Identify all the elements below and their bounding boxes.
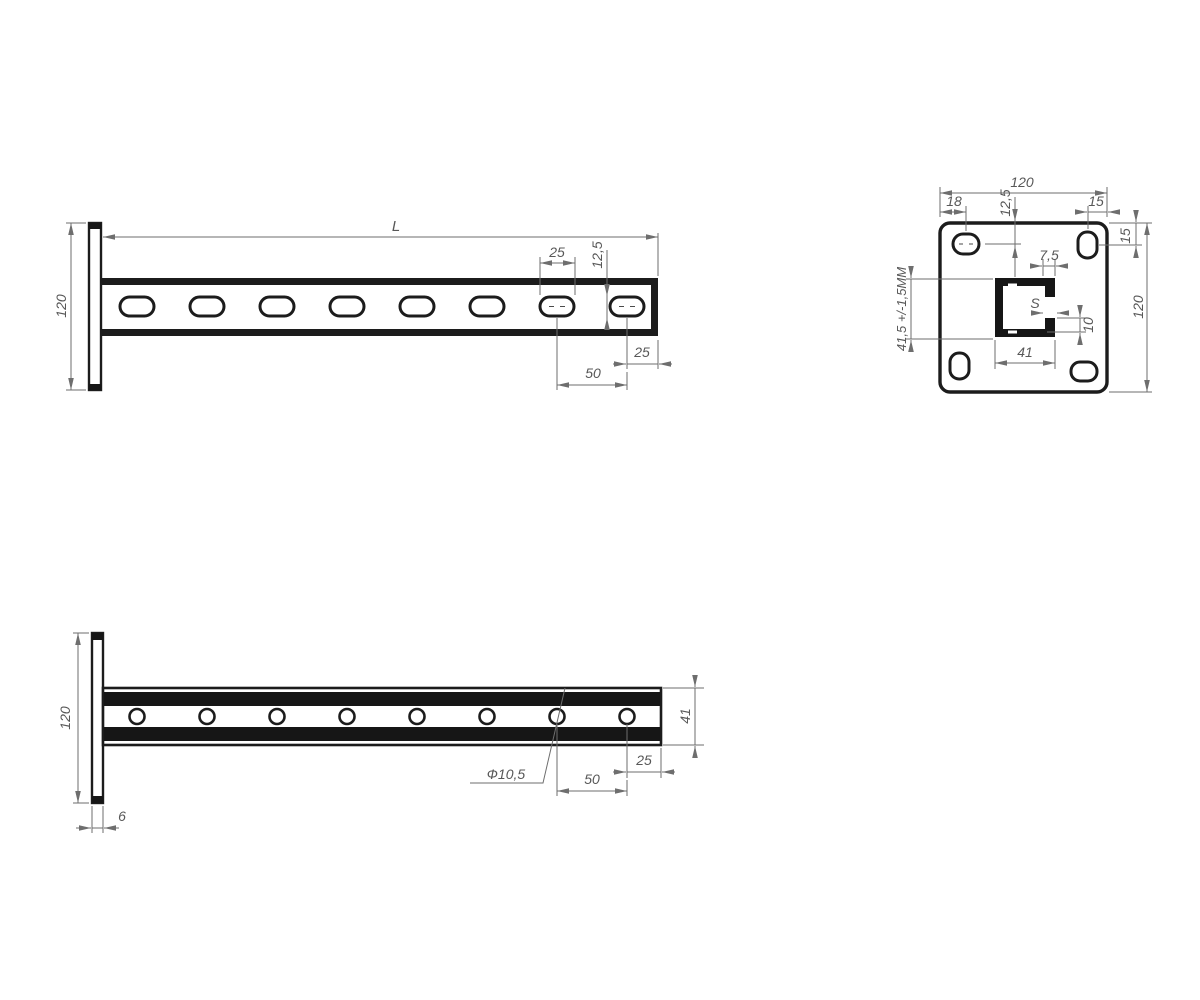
dim-lip-width: 7,5 bbox=[1039, 247, 1059, 263]
front-plate-cap-top bbox=[89, 223, 101, 229]
channel-top-wall bbox=[995, 278, 1045, 286]
dim-plate-height: 120 bbox=[1130, 295, 1146, 319]
dim-front-length: L bbox=[392, 218, 400, 235]
dim-front-pitch: 50 bbox=[585, 365, 601, 381]
top-plate-edge bbox=[92, 633, 103, 803]
back-plate-view: 120 18 12,5 15 15 bbox=[894, 174, 1152, 392]
top-plate-cap-top bbox=[92, 633, 103, 640]
dim-front-slot-length-lines bbox=[540, 257, 575, 295]
dim-top-end-offset: 25 bbox=[635, 752, 652, 768]
slot-hole bbox=[260, 297, 294, 316]
dim-front-height: 120 bbox=[53, 294, 69, 318]
dim-plate-hole-top: 12,5 bbox=[997, 189, 1013, 216]
top-channel-lip-band-2 bbox=[104, 727, 660, 741]
dim-top-channel-width: 41 bbox=[677, 708, 693, 724]
slot-hole bbox=[330, 297, 364, 316]
dim-front-slot-width: 12,5 bbox=[589, 241, 605, 268]
slot-hole bbox=[470, 297, 504, 316]
dim-top-plate-thickness: 6 bbox=[118, 808, 126, 824]
front-plate-edge bbox=[89, 223, 101, 390]
slot-hole bbox=[190, 297, 224, 316]
round-hole bbox=[620, 709, 635, 724]
corner-hole-top-right bbox=[1078, 232, 1097, 258]
dim-front-slot-length: 25 bbox=[548, 244, 565, 260]
dim-plate-hole-top-right: 15 bbox=[1117, 228, 1133, 244]
slot-hole bbox=[540, 297, 574, 316]
channel-left-wall bbox=[995, 278, 1003, 337]
slot-hole bbox=[120, 297, 154, 316]
dim-front-height-lines bbox=[66, 223, 86, 390]
round-hole bbox=[340, 709, 355, 724]
round-hole bbox=[130, 709, 145, 724]
top-plate-cap-bottom bbox=[92, 796, 103, 803]
front-plate-cap-bottom bbox=[89, 384, 101, 390]
round-hole bbox=[270, 709, 285, 724]
front-slot-holes bbox=[120, 297, 644, 316]
round-hole bbox=[410, 709, 425, 724]
slot-hole bbox=[610, 297, 644, 316]
corner-hole-bottom-right bbox=[1071, 362, 1097, 381]
channel-bottom-wall bbox=[995, 329, 1045, 337]
channel-top-notch bbox=[1008, 284, 1017, 287]
slot-hole bbox=[400, 297, 434, 316]
dim-top-pitch: 50 bbox=[584, 771, 600, 787]
dim-channel-width: 41 bbox=[1017, 344, 1033, 360]
top-channel-lip-band-1 bbox=[104, 692, 660, 706]
dim-top-plate-thickness-lines bbox=[76, 806, 119, 833]
round-hole bbox=[200, 709, 215, 724]
dim-lip-height: 10 bbox=[1080, 317, 1096, 333]
dim-top-height: 120 bbox=[57, 706, 73, 730]
dim-top-hole-dia: Ф10,5 bbox=[487, 766, 526, 782]
dim-top-height-lines bbox=[73, 633, 89, 803]
corner-hole-top-left bbox=[953, 234, 979, 254]
dim-front-end-offset: 25 bbox=[633, 344, 650, 360]
dim-plate-hole-left: 18 bbox=[946, 193, 962, 209]
dim-wall-thickness: S bbox=[1030, 295, 1040, 311]
dim-plate-width: 120 bbox=[1010, 174, 1034, 190]
round-hole bbox=[480, 709, 495, 724]
front-view: 120 L 25 12,5 25 bbox=[53, 218, 672, 390]
dim-plate-hole-right: 15 bbox=[1088, 193, 1104, 209]
drawing-canvas: 120 L 25 12,5 25 bbox=[0, 0, 1200, 1000]
dim-channel-height: 41,5 +/-1,5ММ bbox=[894, 267, 909, 351]
top-view: Ф10,5 120 41 25 50 bbox=[57, 633, 704, 833]
corner-hole-bottom-left bbox=[950, 353, 969, 379]
channel-bottom-notch bbox=[1008, 331, 1017, 334]
